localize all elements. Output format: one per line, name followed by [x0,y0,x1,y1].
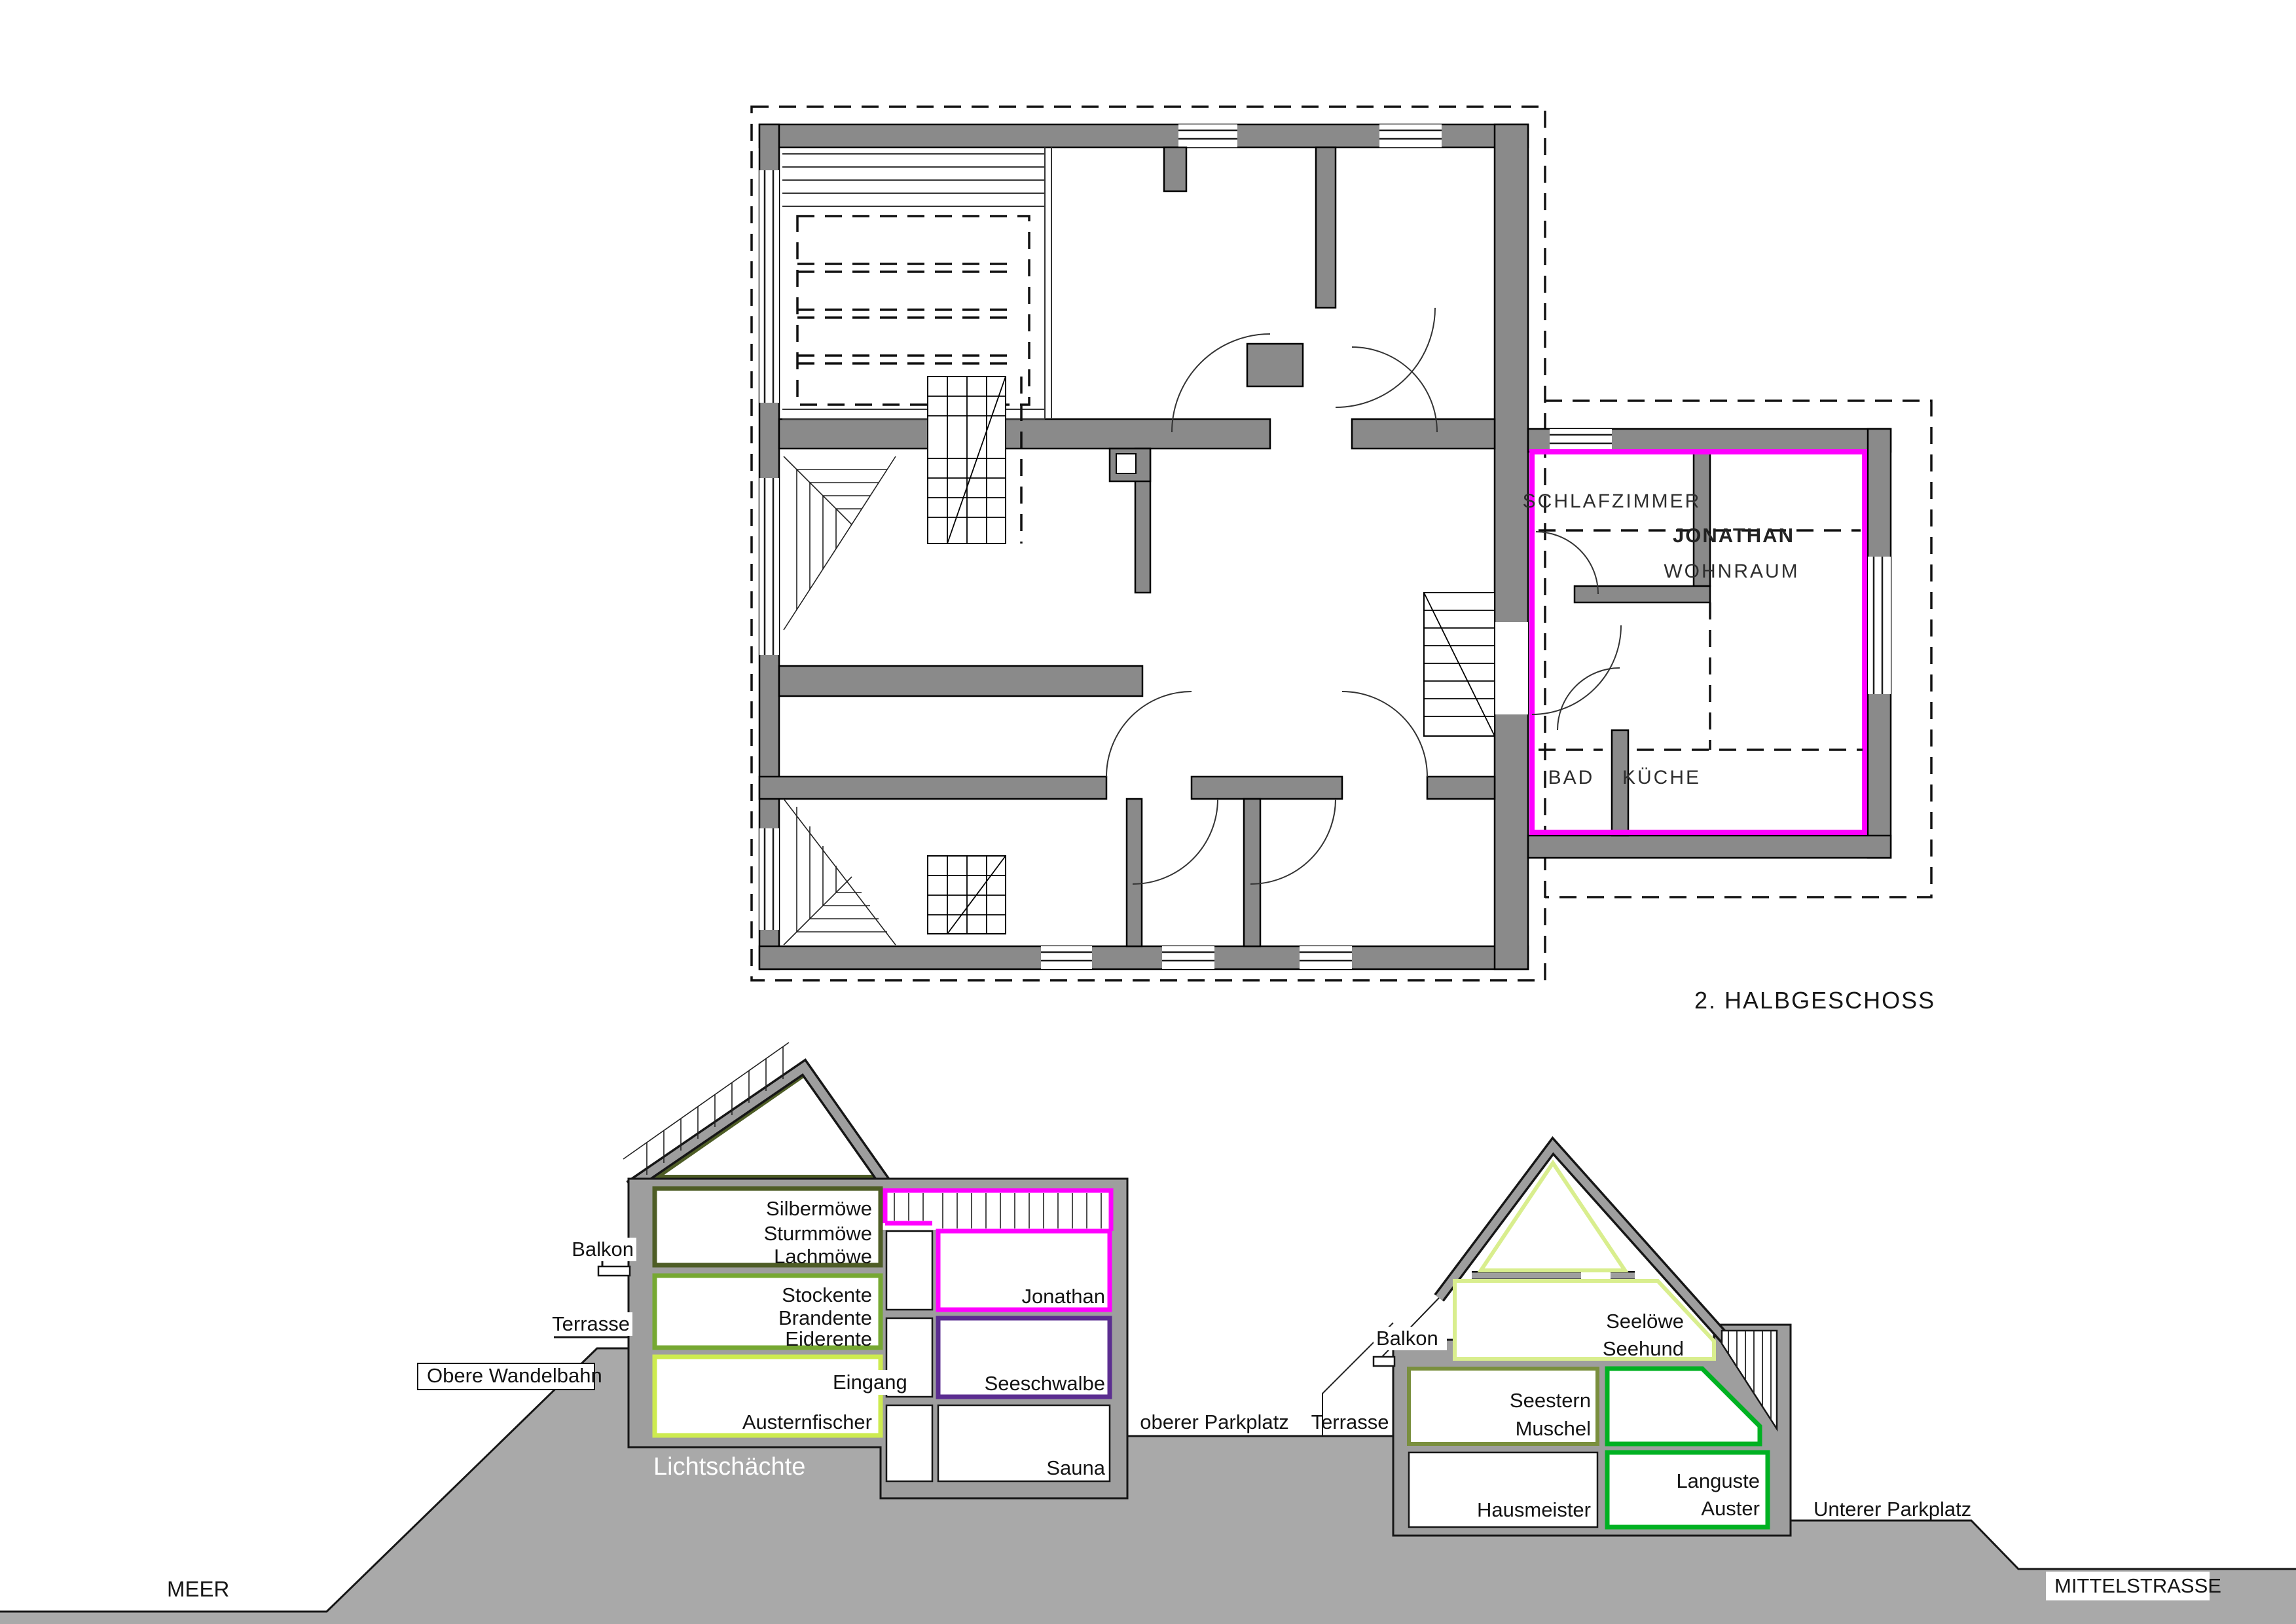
label-terrasse-left: Terrasse [552,1312,630,1335]
label-lachmoewe: Lachmöwe [774,1245,872,1268]
label-jonathan-section: Jonathan [1021,1285,1105,1308]
floor-title: 2. HALBGESCHOSS [1694,987,1935,1014]
label-seestern: Seestern [1510,1389,1591,1412]
label-silbermoewe: Silbermöwe [766,1197,872,1220]
plan-stair-main [928,377,1021,544]
drawing-svg: SCHLAFZIMMER JONATHAN WOHNRAUM BAD KÜCHE… [0,0,2296,1624]
label-seeschwalbe: Seeschwalbe [985,1372,1105,1395]
floor-plan: SCHLAFZIMMER JONATHAN WOHNRAUM BAD KÜCHE… [752,107,1935,1014]
label-eiderente: Eiderente [785,1327,872,1350]
jonathan-apartment: SCHLAFZIMMER JONATHAN WOHNRAUM BAD KÜCHE [1523,452,1865,832]
left-balcony-slab [598,1266,630,1276]
plan-shaft-box [1116,454,1136,473]
left-corridor-bottom [886,1405,932,1481]
label-balkon-left: Balkon [572,1238,634,1261]
apartment-entry-opening [1495,622,1528,714]
label-obere-wandelbahn: Obere Wandelbahn [427,1364,602,1387]
label-lichtschaechte: Lichtschächte [653,1453,805,1481]
plan-chimney [1247,344,1303,386]
terrain-fill [0,1348,2296,1624]
label-auster: Auster [1701,1497,1760,1520]
label-mittelstrasse: MITTELSTRASSE [2054,1574,2221,1597]
label-hausmeister: Hausmeister [1477,1498,1591,1521]
label-schlafzimmer: SCHLAFZIMMER [1523,490,1702,512]
label-sauna: Sauna [1046,1456,1105,1479]
label-wohnraum: WOHNRAUM [1664,561,1799,582]
label-muschel: Muschel [1516,1417,1591,1440]
left-corridor-top [886,1231,932,1310]
label-eingang: Eingang [833,1371,907,1393]
label-meer: MEER [167,1577,229,1601]
terrain [0,1348,2296,1624]
label-brandente: Brandente [778,1306,872,1329]
label-unterer-parkplatz: Unterer Parkplatz [1813,1498,1971,1521]
label-terrasse-right: Terrasse [1311,1411,1389,1433]
label-oberer-parkplatz: oberer Parkplatz [1140,1411,1288,1433]
plan-interior-walls [759,147,1710,946]
label-seehund: Seehund [1603,1337,1684,1360]
label-stockente: Stockente [782,1283,872,1306]
label-jonathan-plan: JONATHAN [1673,524,1795,547]
label-bad: BAD [1548,767,1595,788]
plan-roof-hatch-lower [784,799,896,945]
label-languste: Languste [1676,1469,1760,1492]
label-kueche: KÜCHE [1622,767,1701,788]
right-balcony-slab [1374,1357,1394,1366]
label-seeloewe: Seelöwe [1606,1310,1684,1333]
plan-roof-hatch-upper [784,456,896,630]
plan-loggia [782,147,1051,419]
label-austernfischer: Austernfischer [742,1411,872,1433]
label-balkon-right: Balkon [1376,1327,1438,1350]
label-sturmmoewe: Sturmmöwe [764,1222,872,1245]
plan-stair-lower [928,856,1006,934]
plan-stair-annex [1424,593,1495,736]
architectural-drawing: SCHLAFZIMMER JONATHAN WOHNRAUM BAD KÜCHE… [0,0,2296,1624]
